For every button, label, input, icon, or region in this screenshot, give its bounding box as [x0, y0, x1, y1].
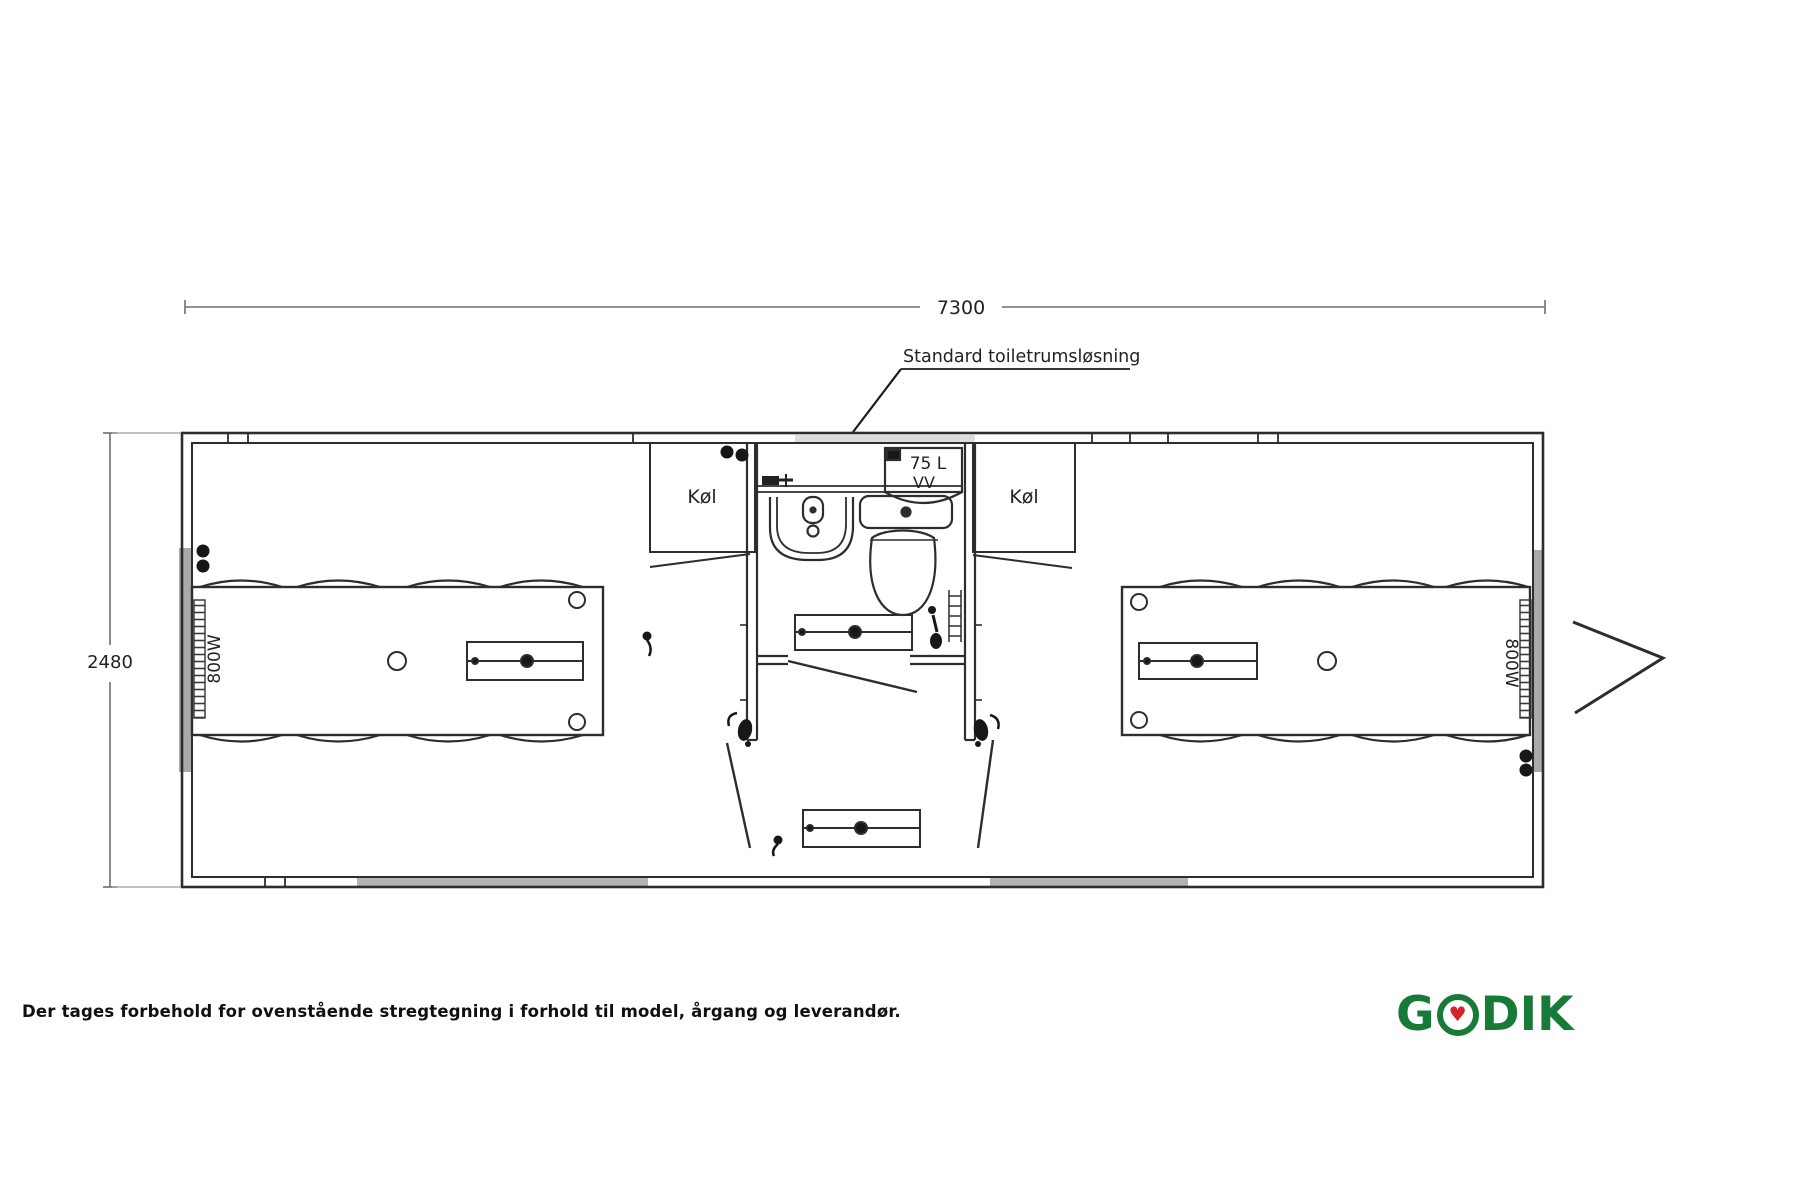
washbasin	[770, 497, 853, 560]
disclaimer-text: Der tages forbehold for ovenstående stre…	[22, 1002, 901, 1021]
right-room-door-swing	[978, 740, 993, 848]
water-heater-label-1: 75 L	[910, 454, 947, 474]
fridge-right-door-swing	[973, 555, 1072, 568]
dimension-length	[185, 300, 1545, 314]
switch-icon-left-room	[643, 632, 652, 657]
toilet-note-label: Standard toiletrumsløsning	[903, 347, 1140, 367]
left-room-door-swing	[727, 743, 750, 848]
godik-logo: G ♥ DIK	[1396, 990, 1574, 1040]
fridge-left-door-swing	[650, 554, 750, 567]
radiator-left-label: 800W	[205, 634, 225, 683]
door-swings	[727, 661, 993, 848]
ceiling-lamp-left-room	[467, 642, 583, 680]
ceiling-lamp-bathroom	[795, 615, 912, 650]
radiator-left	[194, 600, 205, 718]
logo-o-ring: ♥	[1437, 994, 1479, 1036]
socket-icon-right-wall	[1520, 750, 1533, 777]
socket-icon-top-wall	[721, 446, 749, 462]
toilet-brush-icon	[928, 606, 942, 649]
fridge-right-label: Køl	[1009, 486, 1038, 508]
water-heater-label-2: VV	[913, 473, 935, 492]
page: 7300 2480 Standard toiletrumsløsning	[0, 0, 1800, 1200]
entrance-arrow-icon	[1573, 622, 1663, 713]
door-handle-icons	[728, 713, 998, 747]
switch-icon-vestibule	[773, 836, 782, 857]
dimension-length-value: 7300	[937, 297, 985, 319]
exterior-walls	[182, 433, 1543, 887]
towel-rail-icon	[949, 590, 961, 642]
toilet	[860, 496, 952, 615]
faucet-icon	[762, 474, 793, 487]
heart-icon: ♥	[1449, 1004, 1467, 1024]
radiator-right-label: 800W	[1501, 638, 1521, 687]
ceiling-lamp-vestibule	[803, 810, 920, 847]
logo-letters-dik: DIK	[1481, 990, 1574, 1040]
logo-letter-g: G	[1396, 990, 1435, 1040]
fridge-left-label: Køl	[687, 486, 716, 508]
dimension-width-value: 2480	[87, 652, 133, 673]
bathroom-door-swing	[788, 661, 917, 692]
socket-icon-left-wall	[197, 545, 210, 573]
ceiling-lamp-right-room	[1139, 643, 1257, 679]
toilet-note: Standard toiletrumsløsning	[853, 347, 1140, 432]
bathroom-walls	[740, 443, 982, 740]
